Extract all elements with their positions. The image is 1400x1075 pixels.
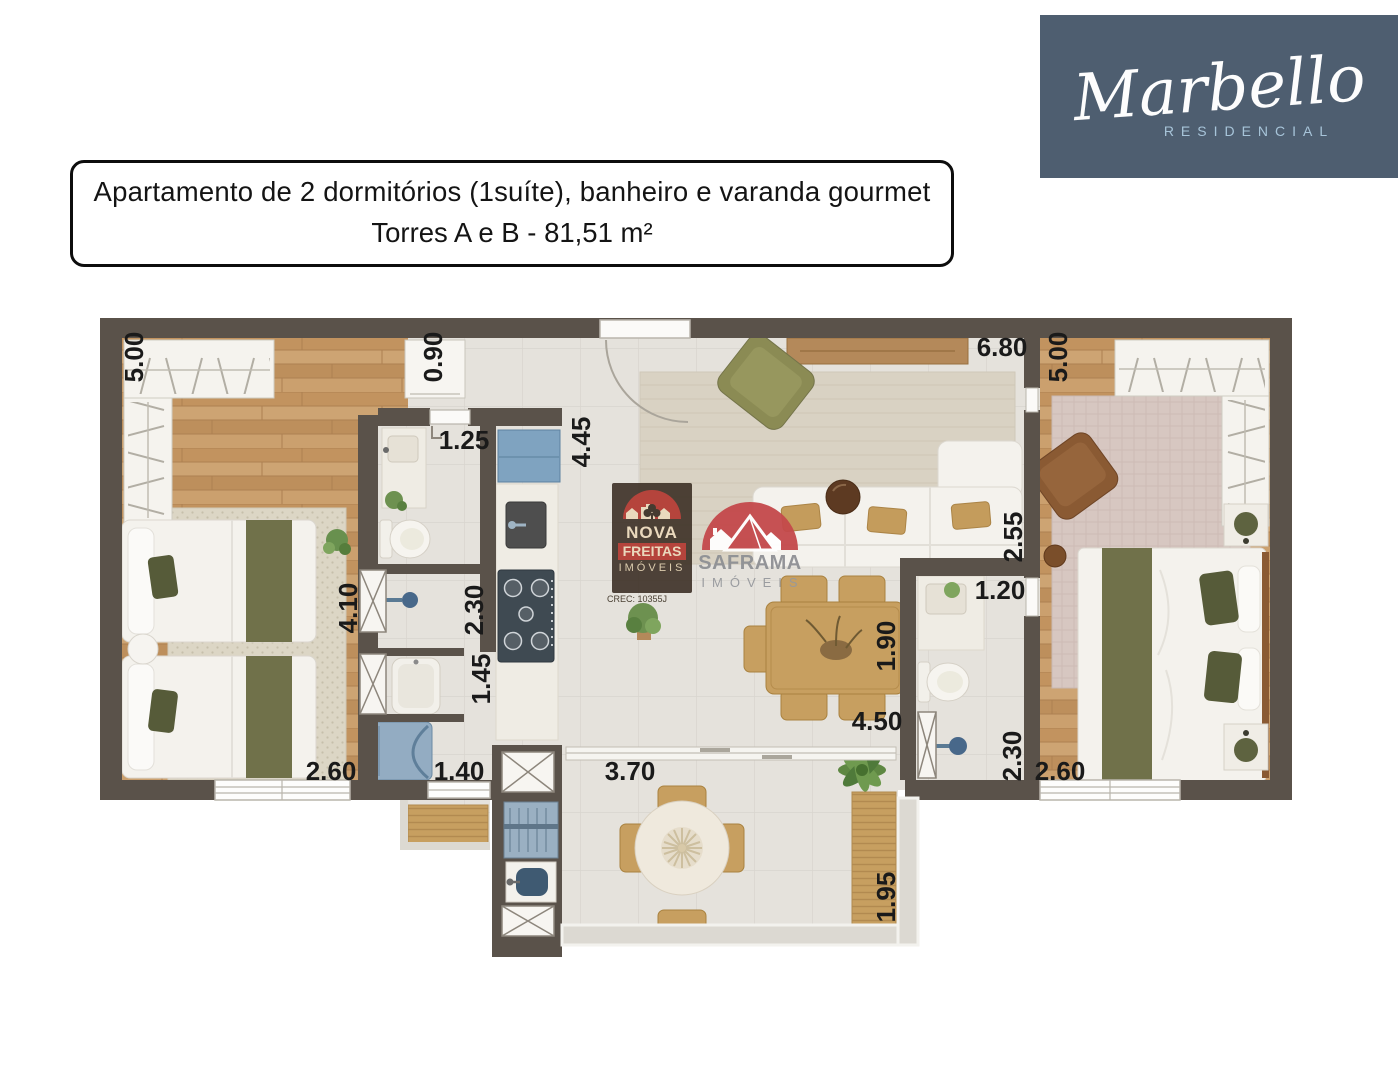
wall-shower-divider [378,564,480,574]
dim-dining-depth: 1.90 [871,621,901,672]
wall-suitebath-left [900,558,916,780]
dim-living-depth: 2.55 [998,512,1028,563]
nova-freitas-line2: FREITAS [618,543,687,560]
suite-bath-plant-icon [944,582,960,598]
hall-wood-floor [378,330,408,414]
coffee-table-icon [826,480,860,514]
suite-nightstand-icon [1224,504,1268,546]
dim-kitchen-living-length: 4.45 [566,417,596,468]
wall-washer-divider [378,714,464,722]
dim-suite-bath-width: 1.20 [975,575,1026,605]
saframa-logo-icon [695,496,805,552]
grill-icon [504,802,558,858]
wall-left [100,318,122,800]
dim-living-width-top: 6.80 [977,332,1028,362]
suite-door-icon [1026,388,1038,412]
bedroom1-bed2-icon [122,656,316,778]
nook-bench-icon [408,805,488,843]
kitchen [496,430,560,740]
bathroom1-toilet-icon [380,520,430,558]
bathroom1-basin [388,436,418,462]
laundry-tub-icon [392,658,440,714]
dim-bedroom1-width-bottom: 2.60 [306,756,357,786]
varanda-appliances [504,802,558,902]
wall-laundry-divider [378,648,464,656]
varanda-sink-icon [506,862,556,902]
dim-bedroom1-width-top: 5.00 [119,332,149,383]
dim-suite-width-top: 5.00 [1043,332,1073,383]
varanda-railing-bottom [562,925,918,945]
saframa-line2: IMÓVEIS [701,576,804,589]
suite-toilet-icon [918,662,969,702]
wall-bathroom1-top [378,408,430,426]
dim-bathroom-shower: 2.30 [459,585,489,636]
suite-nightstand2-icon [1224,724,1268,770]
nova-freitas-creci: CREC: 10355J [607,594,667,604]
dim-varanda-width: 3.70 [605,756,656,786]
nook-railing-bottom [400,842,490,850]
suite-bath-door-icon [1026,578,1038,616]
bathroom1-plant2 [397,501,407,511]
suite-wardrobe-ticks [1119,344,1265,392]
dim-varanda-depth: 1.95 [871,872,901,923]
saframa-line1: SAFRAMA [698,553,802,573]
bathroom1-faucet [383,447,389,453]
bedroom1-stool-icon [128,634,158,664]
kitchen-sink-icon [506,502,546,548]
dim-bedroom1-length: 4.10 [333,583,363,634]
wardrobe-ticks [128,344,270,394]
nova-freitas-logo-icon [613,483,691,523]
varanda-railing-right [898,798,918,945]
stove-icon [498,570,554,662]
dim-bathroom-door: 1.25 [439,425,490,455]
page: Apartamento de 2 dormitórios (1suíte), b… [0,0,1400,1075]
dim-dining-width: 4.50 [852,706,903,736]
nova-freitas-line1: NOVA [626,524,678,541]
saframa-watermark: SAFRAMA IMÓVEIS [694,496,806,589]
wall-top [100,318,1292,338]
dim-laundry-width: 1.40 [434,756,485,786]
bedroom1-bed1-icon [122,520,316,642]
varanda-table-icon [635,801,729,895]
nova-freitas-line3: IMÓVEIS [619,563,686,574]
dim-suite-width-bottom: 2.60 [1035,756,1086,786]
dim-suite-shower: 2.30 [997,731,1027,782]
suite-side-table-icon [1044,545,1066,567]
dim-corridor-length: 1.45 [466,654,496,705]
nook-railing-left [400,800,408,846]
nova-freitas-watermark: NOVA FREITAS IMÓVEIS [612,483,692,593]
dim-hall-width: 0.90 [418,332,448,383]
wall-right [1270,318,1292,800]
wall-kitchen-top [468,408,562,426]
